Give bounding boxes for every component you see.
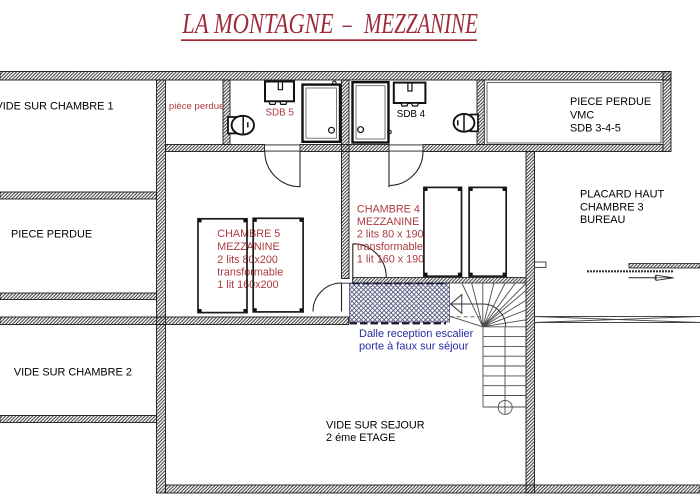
svg-text:MEZZANINE: MEZZANINE (217, 241, 279, 253)
svg-text:–: – (342, 9, 352, 40)
svg-text:2 lits 80 x 190: 2 lits 80 x 190 (357, 229, 424, 241)
svg-text:PIECE PERDUE: PIECE PERDUE (11, 228, 92, 240)
svg-text:PLACARD HAUT: PLACARD HAUT (580, 188, 664, 200)
svg-text:VIDE SUR SEJOUR: VIDE SUR SEJOUR (326, 420, 425, 432)
svg-text:VIDE SUR CHAMBRE 1: VIDE SUR CHAMBRE 1 (0, 100, 114, 112)
svg-text:1 lit 160 x 190: 1 lit 160 x 190 (357, 253, 424, 265)
svg-text:VMC: VMC (570, 109, 594, 121)
svg-text:CHAMBRE 5: CHAMBRE 5 (217, 228, 280, 240)
svg-text:CHAMBRE 4: CHAMBRE 4 (357, 204, 420, 216)
svg-text:Dalle reception escalier: Dalle reception escalier (359, 328, 474, 340)
svg-text:porte à faux sur séjour: porte à faux sur séjour (359, 341, 469, 353)
svg-text:SDB 4: SDB 4 (397, 109, 426, 120)
svg-text:LA MONTAGNE: LA MONTAGNE (181, 9, 334, 40)
svg-text:MEZZANINE: MEZZANINE (363, 9, 478, 40)
svg-text:MEZZANINE: MEZZANINE (357, 216, 419, 228)
svg-text:transformable: transformable (357, 241, 423, 253)
svg-text:PIECE PERDUE: PIECE PERDUE (570, 96, 651, 108)
svg-text:BUREAU: BUREAU (580, 214, 626, 226)
svg-text:CHAMBRE 3: CHAMBRE 3 (580, 202, 644, 214)
svg-text:pièce perdue: pièce perdue (169, 101, 224, 112)
svg-text:2 éme ETAGE: 2 éme ETAGE (326, 432, 395, 444)
svg-text:VIDE SUR CHAMBRE 2: VIDE SUR CHAMBRE 2 (14, 367, 132, 379)
svg-text:SDB 3-4-5: SDB 3-4-5 (570, 122, 621, 134)
svg-text:transformable: transformable (217, 267, 283, 279)
svg-text:SDB 5: SDB 5 (266, 107, 295, 118)
svg-text:1 lit 160x200: 1 lit 160x200 (217, 279, 278, 291)
